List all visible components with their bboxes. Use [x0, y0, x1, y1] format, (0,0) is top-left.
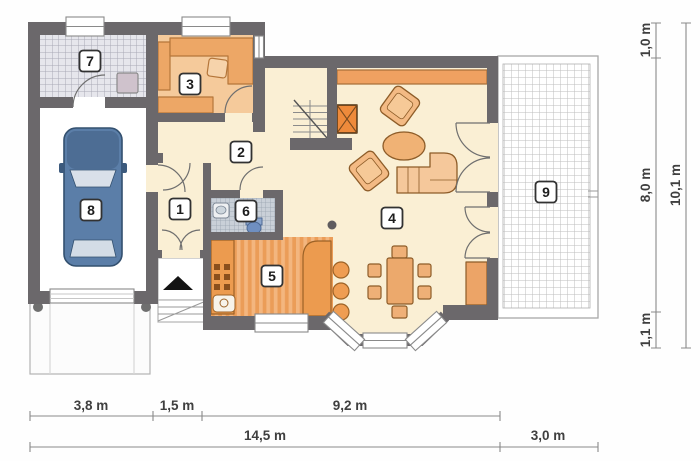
room-label-6: 6 — [236, 201, 257, 222]
garage-door — [50, 289, 134, 303]
dim-bottom-2: 1,5 m — [160, 398, 195, 413]
floor-plan-svg: 1 2 3 4 5 6 7 8 — [0, 0, 700, 461]
svg-text:8: 8 — [87, 202, 95, 218]
dim-right-1: 1,0 m — [638, 23, 653, 58]
bay-window — [363, 333, 407, 348]
bench — [466, 262, 487, 305]
dim-bottom-right: 3,0 m — [531, 428, 566, 443]
svg-text:7: 7 — [86, 53, 94, 69]
dim-right-3: 1,1 m — [638, 313, 653, 348]
dim-bottom-3: 9,2 m — [333, 398, 368, 413]
window — [182, 17, 230, 36]
entrance-porch — [158, 258, 208, 322]
room-label-5: 5 — [262, 266, 283, 287]
kitchen-sink — [213, 295, 235, 312]
car — [59, 128, 127, 266]
side-mirror — [121, 163, 127, 173]
room-label-7: 7 — [80, 51, 101, 72]
room-label-1: 1 — [170, 199, 191, 220]
side-mirror — [59, 163, 65, 173]
coffee-table — [383, 132, 425, 160]
room-label-8: 8 — [81, 200, 102, 221]
dim-bottom-total: 14,5 m — [244, 428, 286, 443]
sideboard — [337, 70, 487, 84]
floor-plan-page: 1 2 3 4 5 6 7 8 — [0, 0, 700, 461]
svg-text:3: 3 — [186, 76, 194, 92]
fireplace — [337, 105, 357, 133]
room-label-3: 3 — [180, 74, 201, 95]
dim-right-2: 8,0 m — [638, 168, 653, 203]
washbasin — [216, 206, 226, 214]
window — [66, 17, 104, 36]
dim-bottom-1: 3,8 m — [74, 398, 109, 413]
svg-text:9: 9 — [542, 184, 550, 200]
column — [328, 221, 337, 230]
room-label-4: 4 — [382, 208, 403, 229]
bar-stools — [333, 262, 349, 320]
driveway — [30, 302, 151, 374]
rear-window — [70, 240, 116, 257]
desk-chair — [207, 58, 228, 78]
svg-text:6: 6 — [242, 203, 250, 219]
window — [255, 36, 264, 58]
boiler — [117, 73, 138, 93]
svg-text:1: 1 — [176, 201, 184, 217]
room-label-9: 9 — [536, 182, 557, 203]
dim-right-total: 10,1 m — [668, 164, 683, 206]
svg-text:5: 5 — [268, 268, 276, 284]
entrance-steps — [158, 300, 208, 322]
bar-counter — [303, 241, 331, 316]
wardrobe — [158, 97, 213, 113]
room-label-2: 2 — [231, 142, 252, 163]
svg-text:4: 4 — [388, 210, 396, 226]
window — [255, 314, 308, 332]
svg-text:2: 2 — [237, 144, 245, 160]
windshield — [70, 170, 116, 187]
staircase — [293, 100, 327, 138]
dining-table — [387, 258, 413, 304]
